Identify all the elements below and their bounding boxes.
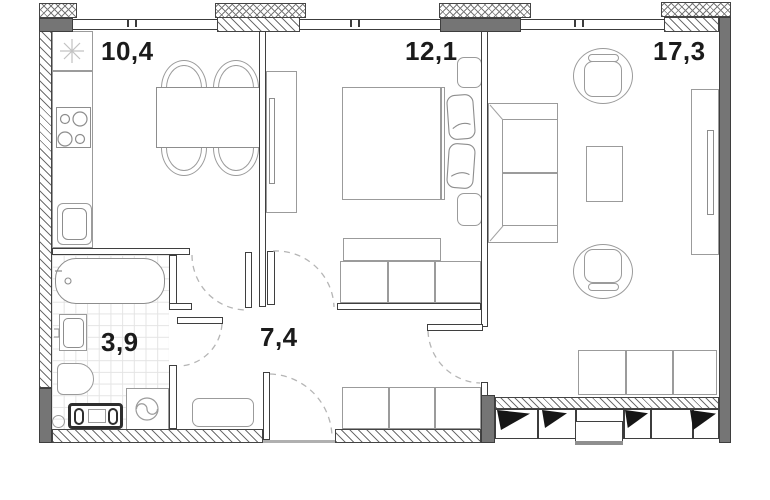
bedroom-door-leaf bbox=[267, 251, 275, 305]
bedroom-door-arc bbox=[273, 251, 334, 307]
kitchen-sink-basin bbox=[62, 208, 87, 240]
window-mullion-tick bbox=[574, 19, 576, 27]
bathroom-door-jamb bbox=[169, 303, 192, 310]
washbasin-bowl bbox=[63, 318, 84, 348]
pillow bbox=[446, 94, 475, 140]
window-strip-top bbox=[39, 19, 731, 30]
dining-table bbox=[156, 87, 260, 148]
bottom-wall bbox=[52, 429, 263, 443]
window-bench bbox=[578, 350, 717, 395]
wall-pier bbox=[217, 17, 300, 32]
nightstand bbox=[457, 57, 482, 88]
window-mullion bbox=[623, 409, 625, 439]
radiator-pill bbox=[108, 408, 118, 425]
facade-pier bbox=[39, 3, 77, 18]
facade-pier bbox=[439, 3, 531, 18]
living-door-leaf bbox=[427, 324, 483, 331]
entrance-door-leaf bbox=[263, 372, 270, 440]
hallway-wardrobe bbox=[342, 387, 481, 429]
corner-column bbox=[39, 388, 52, 443]
bedroom-closet bbox=[340, 261, 481, 303]
kitchen-bedroom-wall bbox=[259, 31, 266, 307]
radiator-pill bbox=[74, 408, 84, 425]
bathroom-door-leaf bbox=[177, 317, 223, 324]
left-wall bbox=[39, 31, 52, 388]
wall-column bbox=[440, 18, 521, 32]
window-mullion-tick bbox=[358, 19, 360, 27]
living-area-label: 17,3 bbox=[653, 36, 706, 67]
ventilation-box bbox=[52, 31, 93, 71]
wall-column bbox=[39, 18, 73, 32]
closet-divider bbox=[387, 261, 389, 303]
wardrobe-divider bbox=[388, 387, 390, 429]
wall-pier bbox=[664, 17, 719, 32]
hallway-bench bbox=[192, 398, 254, 427]
bedroom-area-label: 12,1 bbox=[405, 36, 458, 67]
window-mullion-tick bbox=[582, 19, 584, 27]
floor-drain bbox=[52, 415, 65, 428]
living-hallway-wall bbox=[481, 382, 488, 396]
stove bbox=[56, 107, 91, 148]
bathroom-area-label: 3,9 bbox=[101, 327, 139, 358]
nightstand bbox=[457, 193, 482, 226]
facade-pier bbox=[661, 2, 731, 17]
coffee-table bbox=[586, 146, 623, 202]
bathtub bbox=[55, 258, 165, 304]
living-door-arc bbox=[428, 331, 480, 383]
bathroom-door-arc bbox=[180, 324, 222, 366]
media-cabinet-front bbox=[707, 130, 714, 215]
window-mullion-tick bbox=[135, 19, 137, 27]
right-wall bbox=[719, 17, 731, 443]
bedroom-hallway-wall bbox=[337, 303, 481, 310]
radiator-center bbox=[88, 409, 106, 423]
kitchen-area-label: 10,4 bbox=[101, 36, 154, 67]
bottom-wall bbox=[335, 429, 481, 443]
bedroom-living-wall bbox=[481, 31, 488, 327]
floor-plan: 10,4 12,1 17,3 3,9 7,4 bbox=[0, 0, 770, 500]
window-mullion-tick bbox=[127, 19, 129, 27]
window-mullion bbox=[537, 409, 539, 439]
armchair-back bbox=[588, 283, 619, 291]
bench-divider bbox=[625, 350, 627, 395]
wardrobe-divider bbox=[434, 387, 436, 429]
pillow bbox=[446, 143, 475, 189]
bathroom-right-wall bbox=[169, 365, 177, 429]
balcony-door-sill bbox=[575, 441, 623, 445]
toilet bbox=[57, 363, 94, 395]
window-mullion-tick bbox=[350, 19, 352, 27]
bedroom-dresser bbox=[343, 238, 441, 261]
washing-machine bbox=[126, 388, 169, 430]
closet-divider bbox=[434, 261, 436, 303]
media-cabinet bbox=[691, 89, 719, 255]
facade-pier bbox=[215, 3, 306, 18]
balcony-door-panel bbox=[575, 421, 623, 442]
window-wall-sill bbox=[495, 397, 719, 409]
armchair-back bbox=[588, 54, 619, 62]
hallway-area-label: 7,4 bbox=[260, 322, 298, 353]
double-bed bbox=[342, 87, 445, 200]
entrance-door-arc bbox=[270, 374, 332, 438]
armchair-seat bbox=[584, 61, 622, 97]
bedroom-wardrobe-door bbox=[269, 98, 275, 184]
corner-column bbox=[481, 395, 495, 443]
entrance-threshold bbox=[263, 440, 335, 443]
bench-divider bbox=[672, 350, 674, 395]
window-mullion bbox=[650, 409, 652, 439]
sofa-seat-divider bbox=[503, 172, 558, 174]
armchair-seat bbox=[584, 249, 622, 283]
bathroom-right-wall bbox=[169, 255, 177, 310]
kitchen-bathroom-wall bbox=[52, 248, 190, 255]
bed-headboard-line bbox=[440, 88, 442, 199]
kitchen-door-arc bbox=[192, 255, 248, 310]
kitchen-door-leaf bbox=[245, 252, 252, 308]
